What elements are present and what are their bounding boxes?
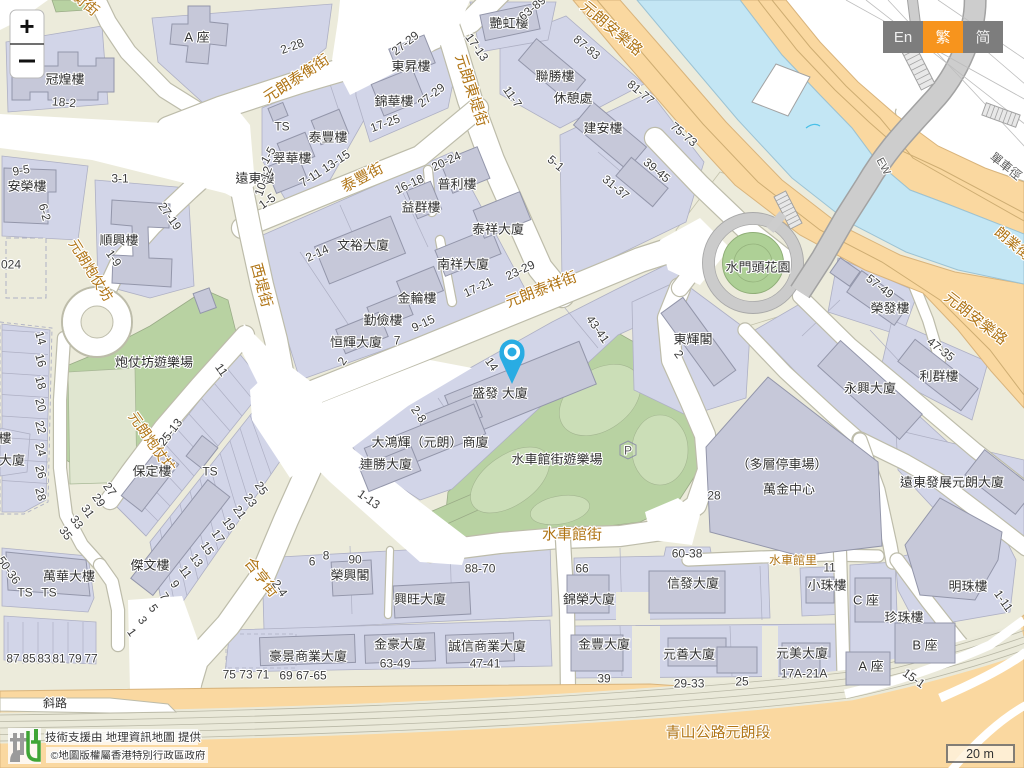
svg-text:8: 8 — [323, 548, 330, 562]
svg-text:77: 77 — [84, 651, 98, 665]
svg-text:6: 6 — [309, 554, 316, 568]
svg-text:17A-21A: 17A-21A — [781, 666, 828, 680]
svg-text:A: A — [858, 659, 867, 674]
svg-text:69 67-65: 69 67-65 — [279, 668, 327, 682]
svg-text:11: 11 — [823, 560, 836, 574]
svg-text:TS: TS — [274, 119, 289, 133]
svg-text:66: 66 — [575, 561, 589, 575]
svg-text:TS: TS — [41, 585, 56, 599]
svg-text:3-1: 3-1 — [111, 171, 129, 185]
svg-text:P: P — [624, 443, 632, 457]
svg-text:60-38: 60-38 — [672, 546, 703, 560]
svg-text:TS: TS — [202, 464, 217, 478]
svg-text:75 73 71: 75 73 71 — [223, 667, 270, 681]
svg-text:TS: TS — [17, 585, 32, 599]
svg-text:C: C — [853, 593, 862, 608]
svg-text:90: 90 — [348, 552, 362, 566]
svg-text:En: En — [894, 29, 912, 46]
svg-text:18-2: 18-2 — [51, 94, 76, 110]
svg-text:87: 87 — [6, 651, 20, 665]
svg-text:A: A — [184, 30, 193, 45]
svg-text:88-70: 88-70 — [465, 561, 496, 575]
svg-text:83: 83 — [37, 651, 51, 665]
svg-text:81: 81 — [52, 651, 66, 665]
svg-text:28: 28 — [707, 488, 721, 502]
svg-text:7: 7 — [394, 333, 401, 347]
svg-text:47-41: 47-41 — [470, 656, 501, 670]
svg-text:63-49: 63-49 — [380, 656, 411, 670]
svg-text:39: 39 — [597, 671, 611, 685]
svg-text:©: © — [51, 750, 59, 762]
svg-text:85: 85 — [22, 651, 36, 665]
svg-text:024: 024 — [1, 257, 21, 271]
svg-text:B: B — [912, 638, 921, 653]
svg-text:20 m: 20 m — [966, 747, 994, 761]
svg-text:29-33: 29-33 — [674, 676, 705, 690]
svg-text:+: + — [19, 11, 34, 41]
svg-text:79: 79 — [68, 651, 82, 665]
svg-text:25: 25 — [735, 674, 749, 688]
